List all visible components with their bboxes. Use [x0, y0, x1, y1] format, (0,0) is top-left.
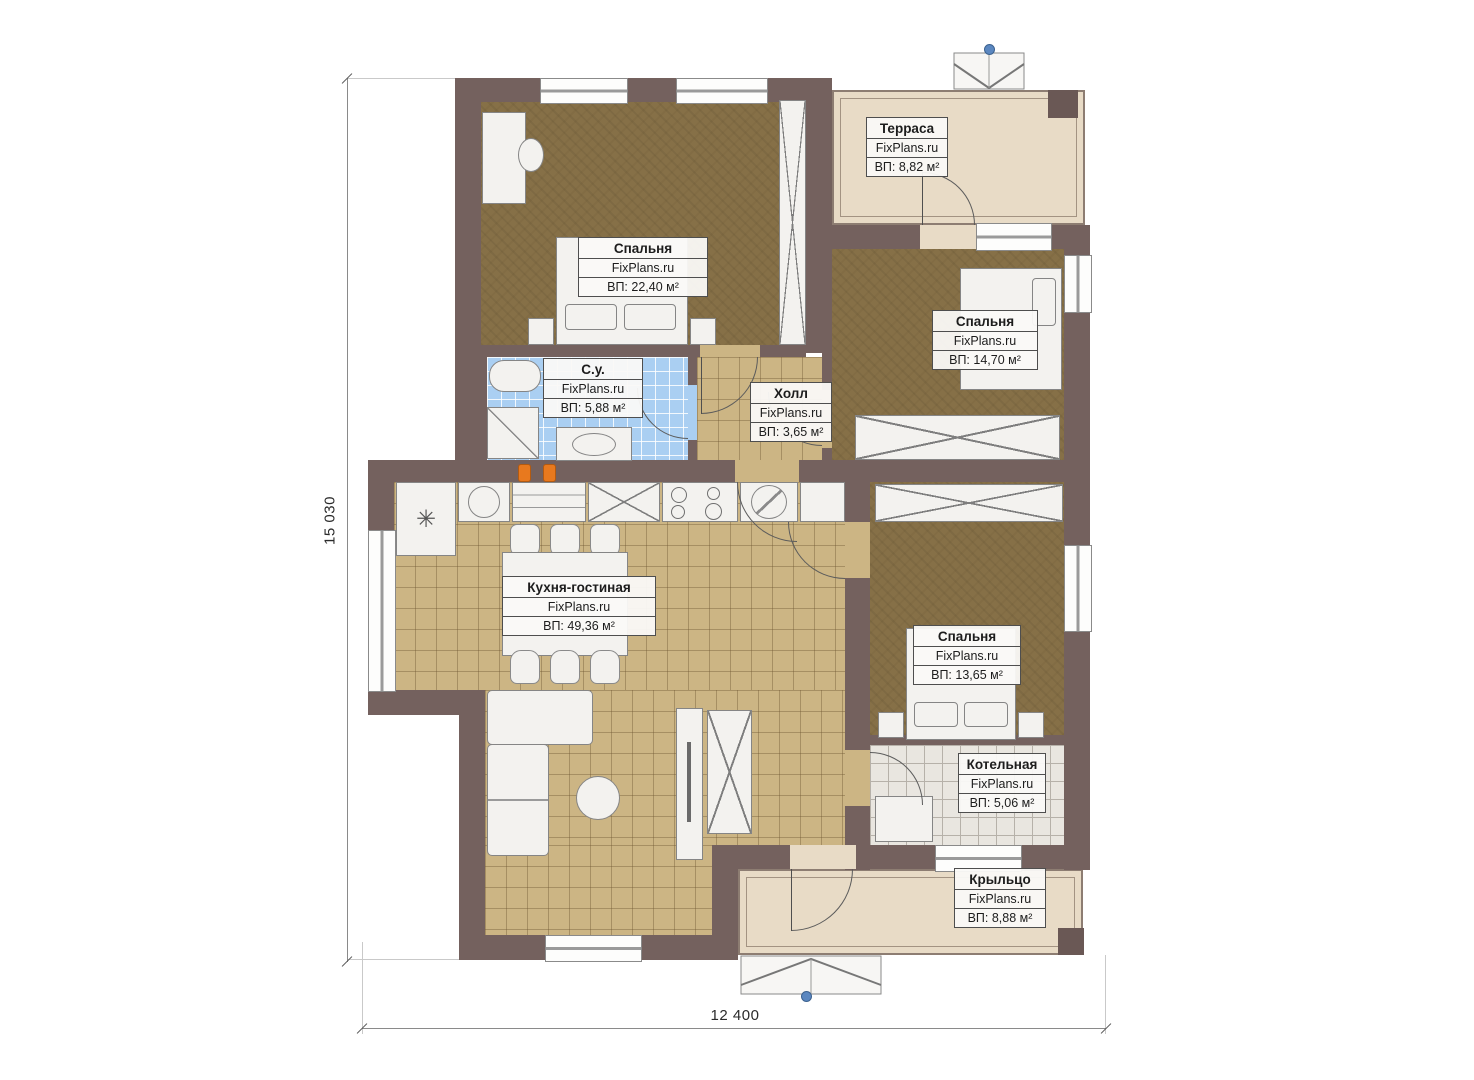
door-opening-bedroom3 [845, 522, 870, 578]
dining-chair [590, 650, 620, 684]
coffee-table [576, 776, 620, 820]
wall-mid-horizontal [368, 460, 1090, 482]
terrace-steps [953, 52, 1025, 90]
terrace-area: ВП: 8,82 м² [867, 158, 947, 176]
bathtub [489, 360, 541, 392]
kitchen-watermark: FixPlans.ru [503, 598, 655, 617]
porch-area: ВП: 8,88 м² [955, 909, 1045, 927]
wall-bedroom1-terrace [806, 78, 832, 353]
porch-steps [740, 955, 882, 995]
extension-line [1105, 955, 1106, 1034]
hall-watermark: FixPlans.ru [751, 404, 831, 423]
dining-chair [510, 650, 540, 684]
width-dimension-label: 12 400 [700, 1007, 770, 1024]
kitchen-sink-bowl [468, 486, 500, 518]
door-opening-hall-kitchen [735, 460, 799, 482]
bathroom-label: С.у. FixPlans.ru ВП: 5,88 м² [543, 358, 643, 418]
terrace-door-leaf [922, 172, 923, 225]
boiler-label: Котельная FixPlans.ru ВП: 5,06 м² [958, 753, 1046, 813]
wall-bathroom-left [455, 345, 487, 465]
width-dimension-line [362, 1028, 1106, 1029]
bedroom3-label: Спальня FixPlans.ru ВП: 13,65 м² [913, 625, 1021, 685]
porch-door-leaf [791, 869, 792, 931]
bedroom1-area: ВП: 22,40 м² [579, 278, 707, 296]
floor-plan-canvas: ✳ [0, 0, 1474, 1080]
kitchen-drawer-cabinet [512, 482, 586, 522]
sofa-side-section [487, 744, 549, 856]
entry-marker-top [984, 44, 995, 55]
bedroom1-name: Спальня [579, 238, 707, 259]
bedroom2-watermark: FixPlans.ru [933, 332, 1037, 351]
entry-marker-bottom [801, 991, 812, 1002]
door-opening-bedroom1-hall [700, 345, 760, 357]
dining-chair [550, 650, 580, 684]
kitchen-tall-cabinet: ✳ [396, 482, 456, 556]
wall-left-lower [459, 700, 485, 960]
stove-burner [671, 505, 685, 519]
terrace-label: Терраса FixPlans.ru ВП: 8,82 м² [866, 117, 948, 177]
boiler-name: Котельная [959, 754, 1045, 775]
porch-label: Крыльцо FixPlans.ru ВП: 8,88 м² [954, 868, 1046, 928]
bedroom3-nightstand-left [878, 712, 904, 738]
bedroom1-wardrobe [779, 100, 806, 345]
window-bedroom1-right [676, 78, 768, 104]
living-wardrobe [707, 710, 752, 834]
extension-line [347, 78, 455, 79]
bathroom-watermark: FixPlans.ru [544, 380, 642, 399]
kitchen-counter-end [800, 482, 845, 522]
hall-label: Холл FixPlans.ru ВП: 3,65 м² [750, 382, 832, 442]
door-opening-terrace [920, 225, 976, 249]
gas-riser [518, 464, 531, 482]
window-kitchen-left [368, 530, 396, 692]
terrace-pillar [1048, 90, 1078, 118]
boiler-watermark: FixPlans.ru [959, 775, 1045, 794]
bedroom3-area: ВП: 13,65 м² [914, 666, 1020, 684]
bedroom2-label: Спальня FixPlans.ru ВП: 14,70 м² [932, 310, 1038, 370]
bedroom2-name: Спальня [933, 311, 1037, 332]
bathroom-sink [572, 433, 616, 456]
door-opening-boiler [845, 750, 870, 806]
height-dimension-label: 15 030 [322, 491, 339, 551]
wall-top [455, 78, 832, 102]
kitchen-name: Кухня-гостиная [503, 577, 655, 598]
kitchen-stove [662, 482, 738, 522]
bedroom3-pillow-right [964, 702, 1008, 727]
bedroom3-watermark: FixPlans.ru [914, 647, 1020, 666]
extension-line [362, 942, 363, 1034]
bedroom1-chair [518, 138, 544, 172]
window-living-bottom [545, 935, 642, 962]
bedroom3-nightstand-right [1018, 712, 1044, 738]
bedroom1-nightstand-right [690, 318, 716, 345]
stove-burner [707, 487, 720, 500]
stove-burner [705, 503, 722, 520]
bedroom1-door-leaf [701, 357, 702, 414]
bedroom1-pillow-left [565, 304, 617, 330]
wall-porch-top [712, 845, 1090, 869]
kitchen-label: Кухня-гостиная FixPlans.ru ВП: 49,36 м² [502, 576, 656, 636]
boiler-area: ВП: 5,06 м² [959, 794, 1045, 812]
porch-pillar [1058, 928, 1084, 955]
door-opening-porch [790, 845, 856, 869]
window-bedroom1-left [540, 78, 628, 104]
porch-watermark: FixPlans.ru [955, 890, 1045, 909]
bedroom3-wardrobe [875, 484, 1063, 522]
terrace-name: Терраса [867, 118, 947, 139]
bedroom2-wardrobe [855, 415, 1060, 460]
bathroom-area: ВП: 5,88 м² [544, 399, 642, 417]
bedroom3-pillow-left [914, 702, 958, 727]
kitchen-dishwasher [588, 482, 660, 522]
extension-line [347, 959, 459, 960]
bedroom2-area: ВП: 14,70 м² [933, 351, 1037, 369]
sofa-top-section [487, 690, 593, 745]
height-dimension-line [347, 78, 348, 962]
bedroom1-pillow-right [624, 304, 676, 330]
window-bedroom2-right [1064, 255, 1092, 313]
bedroom1-label: Спальня FixPlans.ru ВП: 22,40 м² [578, 237, 708, 297]
tv-screen [687, 742, 691, 822]
door-opening-bathroom [688, 385, 697, 440]
water-heater-symbol: ✳ [416, 505, 436, 534]
bathroom-name: С.у. [544, 359, 642, 380]
hall-name: Холл [751, 383, 831, 404]
stove-burner [671, 487, 687, 503]
shower-tray [487, 407, 539, 459]
bedroom1-nightstand-left [528, 318, 554, 345]
bedroom1-watermark: FixPlans.ru [579, 259, 707, 278]
bedroom3-name: Спальня [914, 626, 1020, 647]
window-terrace-bedroom2 [976, 223, 1052, 251]
kitchen-area: ВП: 49,36 м² [503, 617, 655, 635]
terrace-watermark: FixPlans.ru [867, 139, 947, 158]
gas-riser [543, 464, 556, 482]
window-bedroom3-right [1064, 545, 1092, 632]
hall-area: ВП: 3,65 м² [751, 423, 831, 441]
wall-left-bedroom1 [455, 78, 481, 353]
porch-name: Крыльцо [955, 869, 1045, 890]
